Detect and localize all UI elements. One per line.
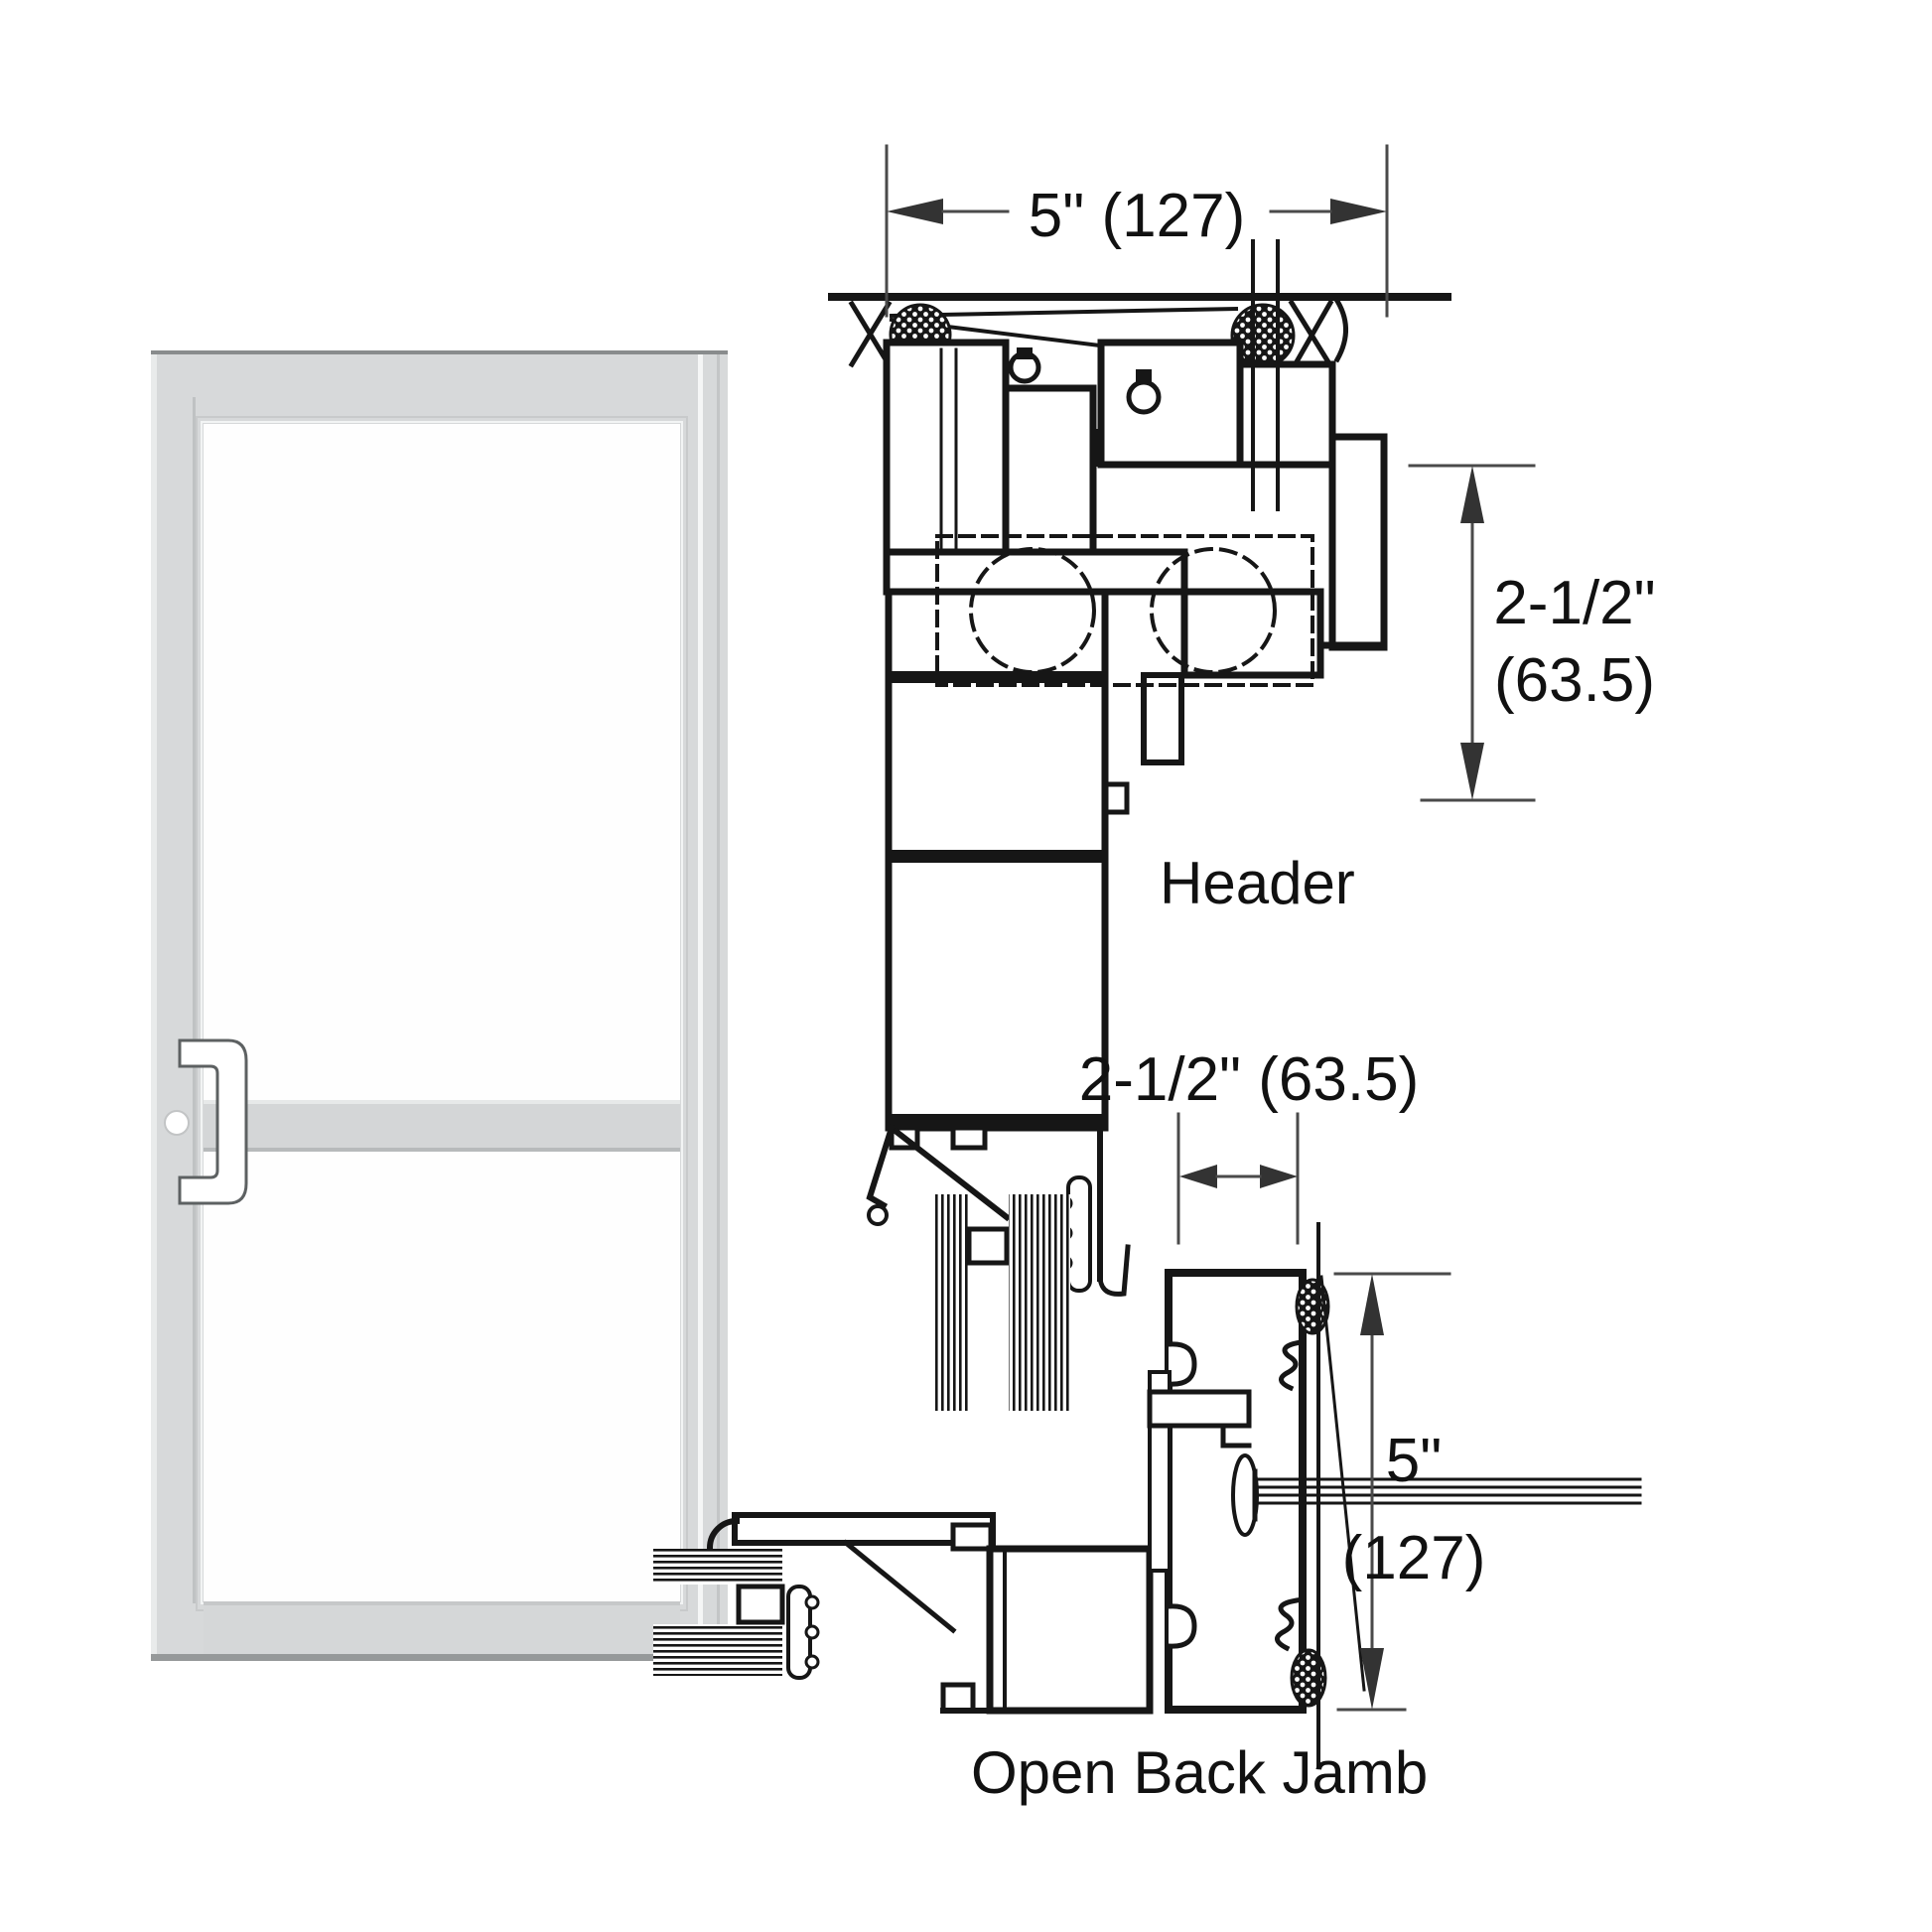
arrow-right-icon [1260,1165,1298,1188]
door-right-stile-gap [698,354,703,1656]
door-glass [204,424,680,1601]
header-width-dim-text: 5" (127) [1029,182,1245,250]
door-right-frame-line [717,354,720,1656]
lock-cylinder [165,1111,189,1135]
arrow-up-icon [1460,466,1484,523]
header-width-dimension: 5" (127) [887,146,1387,316]
door-frame-top-edge [151,350,728,354]
arrow-down-icon [1460,743,1484,800]
door-section-diagram: 5" (127) 2-1/2" (63.5) Header [0,0,1932,1932]
jamb-depth-dim-line2: (127) [1342,1524,1486,1592]
glass-unit-section [935,1194,1070,1411]
door-stop-arm [1150,1392,1249,1426]
jamb-width-dimension: 2-1/2" (63.5) [1079,1045,1420,1243]
arrow-left-icon [887,199,943,224]
header-section-detail: 5" (127) 2-1/2" (63.5) Header [832,146,1656,1411]
door-frame-left-shadow-line [193,397,196,1603]
open-back-jamb-detail: 2-1/2" (63.5) 5" (127) Open Back Jamb [653,1045,1640,1806]
door-stile-section [889,592,1105,1148]
technical-drawing-page: 5" (127) 2-1/2" (63.5) Header [0,0,1932,1932]
door-mid-rail [204,1100,680,1152]
jamb-depth-dim-line1: 5" [1386,1427,1443,1495]
open-back-jamb-label: Open Back Jamb [971,1739,1428,1806]
door-frame-left-highlight [151,354,157,1656]
arrow-right-icon [1330,199,1387,224]
arrow-up-icon [1360,1274,1384,1335]
header-depth-dim-line1: 2-1/2" [1493,569,1655,637]
jamb-depth-dimension: 5" (127) [1335,1274,1485,1710]
door-elevation [151,350,728,1661]
glass-unit-plan [653,1549,782,1585]
jamb-tube-section [1150,1273,1328,1710]
glazing-pocket [869,1128,1128,1294]
jamb-width-dim-text: 2-1/2" (63.5) [1079,1045,1420,1114]
arrow-left-icon [1179,1165,1217,1188]
header-depth-dim-line2: (63.5) [1494,646,1655,715]
perimeter-seal-right [1232,298,1346,366]
header-depth-dimension: 2-1/2" (63.5) [1410,466,1656,800]
door-bottom-rail [151,1601,728,1661]
header-label: Header [1160,850,1355,916]
